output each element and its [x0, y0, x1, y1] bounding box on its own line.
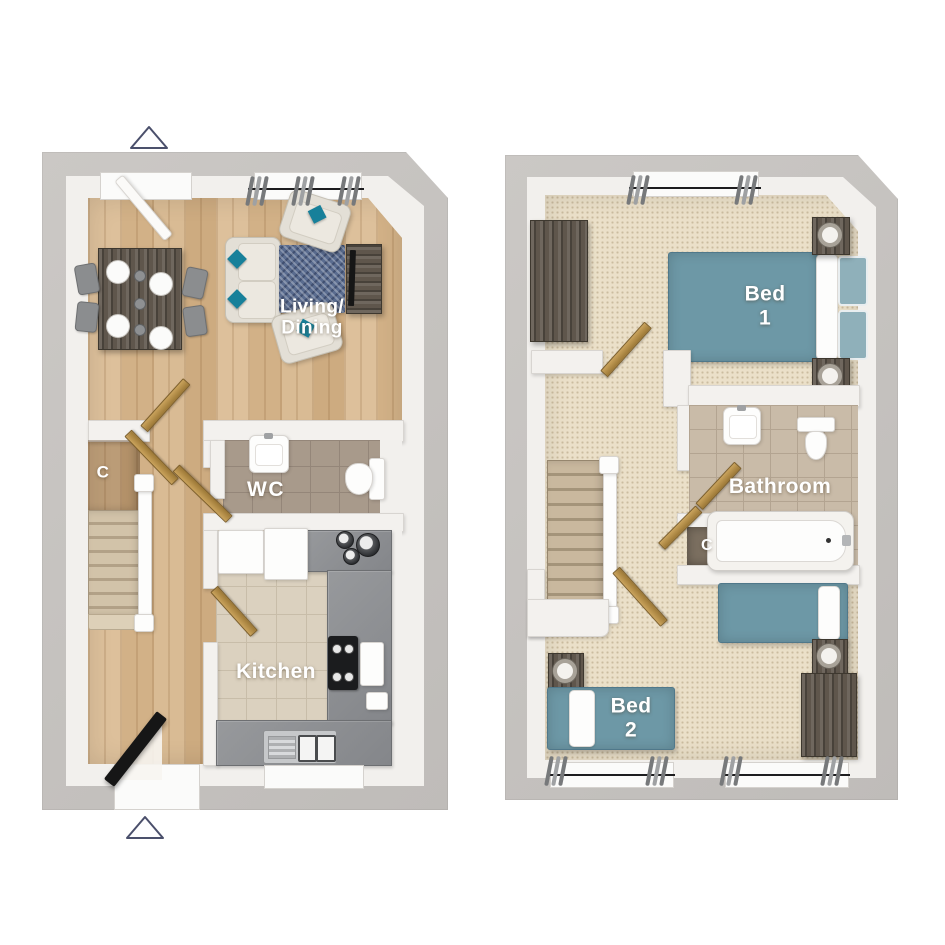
drainer [268, 736, 296, 759]
fridge [264, 528, 308, 580]
single-bed [718, 583, 846, 641]
toilet-bowl [805, 431, 827, 460]
table-decor [134, 298, 146, 310]
room-label-bathroom: Bathroom [729, 475, 831, 499]
wc-top-wall [203, 420, 404, 442]
corner-wall [663, 350, 691, 407]
oven [360, 642, 384, 686]
curtain [823, 756, 847, 788]
curtain [547, 756, 571, 788]
plate [106, 314, 130, 338]
kitchen-stool [366, 692, 388, 710]
teal-pillow [838, 310, 868, 360]
curtain-right [340, 176, 364, 208]
lamp-icon [817, 644, 841, 668]
pillow [816, 254, 838, 360]
sofa [225, 237, 281, 323]
room-label-kitchen: Kitchen [236, 660, 316, 684]
lamp-icon [818, 223, 842, 247]
newel-post [134, 474, 154, 492]
burner [332, 644, 342, 654]
kitchen-appliance [218, 530, 264, 574]
hob [328, 636, 358, 690]
garden-door-opening [100, 172, 192, 200]
first-floor-plan: Bed 1 Bathroom C Bed 2 [505, 155, 898, 800]
wc-toilet [345, 458, 387, 498]
nightstand [812, 639, 848, 675]
toilet-bowl [345, 463, 373, 495]
sink-basin [298, 735, 317, 762]
bathroom-top-wall [688, 385, 860, 407]
curtain-left [248, 176, 272, 208]
newel-post [599, 456, 619, 474]
pot [336, 531, 354, 549]
plate [106, 260, 130, 284]
sink-basin [255, 444, 283, 466]
wardrobe [801, 673, 857, 757]
dining-chair [74, 301, 99, 333]
curtain-middle [294, 176, 318, 208]
room-label-cupboard-ground: C [97, 462, 110, 481]
wardrobe [530, 220, 588, 342]
table-decor [134, 324, 146, 336]
handrail [603, 464, 617, 610]
plate [149, 272, 173, 296]
room-label-bed1: Bed 1 [745, 282, 786, 329]
burner [344, 644, 354, 654]
plate [149, 326, 173, 350]
curtain-left [629, 175, 653, 207]
nightstand [548, 653, 584, 691]
ground-floor-plan: Living/ Dining WC Kitchen C [42, 152, 448, 810]
nightstand [812, 217, 850, 255]
tv-icon [348, 250, 356, 306]
dining-chair [182, 305, 208, 338]
tub-faucet-icon [842, 535, 851, 546]
kitchen-window [264, 765, 364, 789]
room-label-wc: WC [247, 478, 285, 502]
newel-post [134, 614, 154, 632]
kitchen-sink [263, 730, 337, 764]
faucet-icon [264, 433, 273, 439]
pillow [569, 690, 595, 747]
stair-landing [527, 599, 609, 637]
entrance-marker-top-icon [128, 124, 170, 151]
table-decor [134, 270, 146, 282]
tv-unit [346, 244, 382, 314]
bathtub [707, 511, 854, 571]
bathroom-sink [723, 407, 761, 445]
burner [332, 672, 342, 682]
bathroom-toilet [797, 417, 835, 459]
curtain [722, 756, 746, 788]
burner [344, 672, 354, 682]
room-label-living-dining: Living/ Dining [280, 297, 344, 340]
drain-icon [826, 538, 831, 543]
room-label-bed2: Bed 2 [611, 694, 652, 741]
entrance-marker-bottom-icon [124, 814, 166, 841]
kitchen-wall-upper [203, 530, 218, 589]
dining-table [98, 248, 182, 350]
faucet-icon [737, 405, 746, 411]
wc-sink [249, 435, 289, 473]
pillow [818, 586, 840, 640]
curtain [648, 756, 672, 788]
stairs [88, 510, 142, 616]
bed1-wall [531, 350, 603, 374]
teal-pillow [838, 256, 868, 306]
sink-basin [729, 415, 757, 439]
stairs [547, 460, 605, 612]
toilet-tank [797, 417, 835, 432]
handrail [138, 482, 152, 624]
wc-left-wall [210, 440, 225, 499]
sink-basin [316, 735, 336, 762]
room-label-cupboard-first: C [701, 537, 713, 555]
lamp-icon [553, 659, 577, 683]
curtain-right [737, 175, 761, 207]
floorplan-canvas: Living/ Dining WC Kitchen C [0, 0, 945, 945]
pot [343, 548, 360, 565]
